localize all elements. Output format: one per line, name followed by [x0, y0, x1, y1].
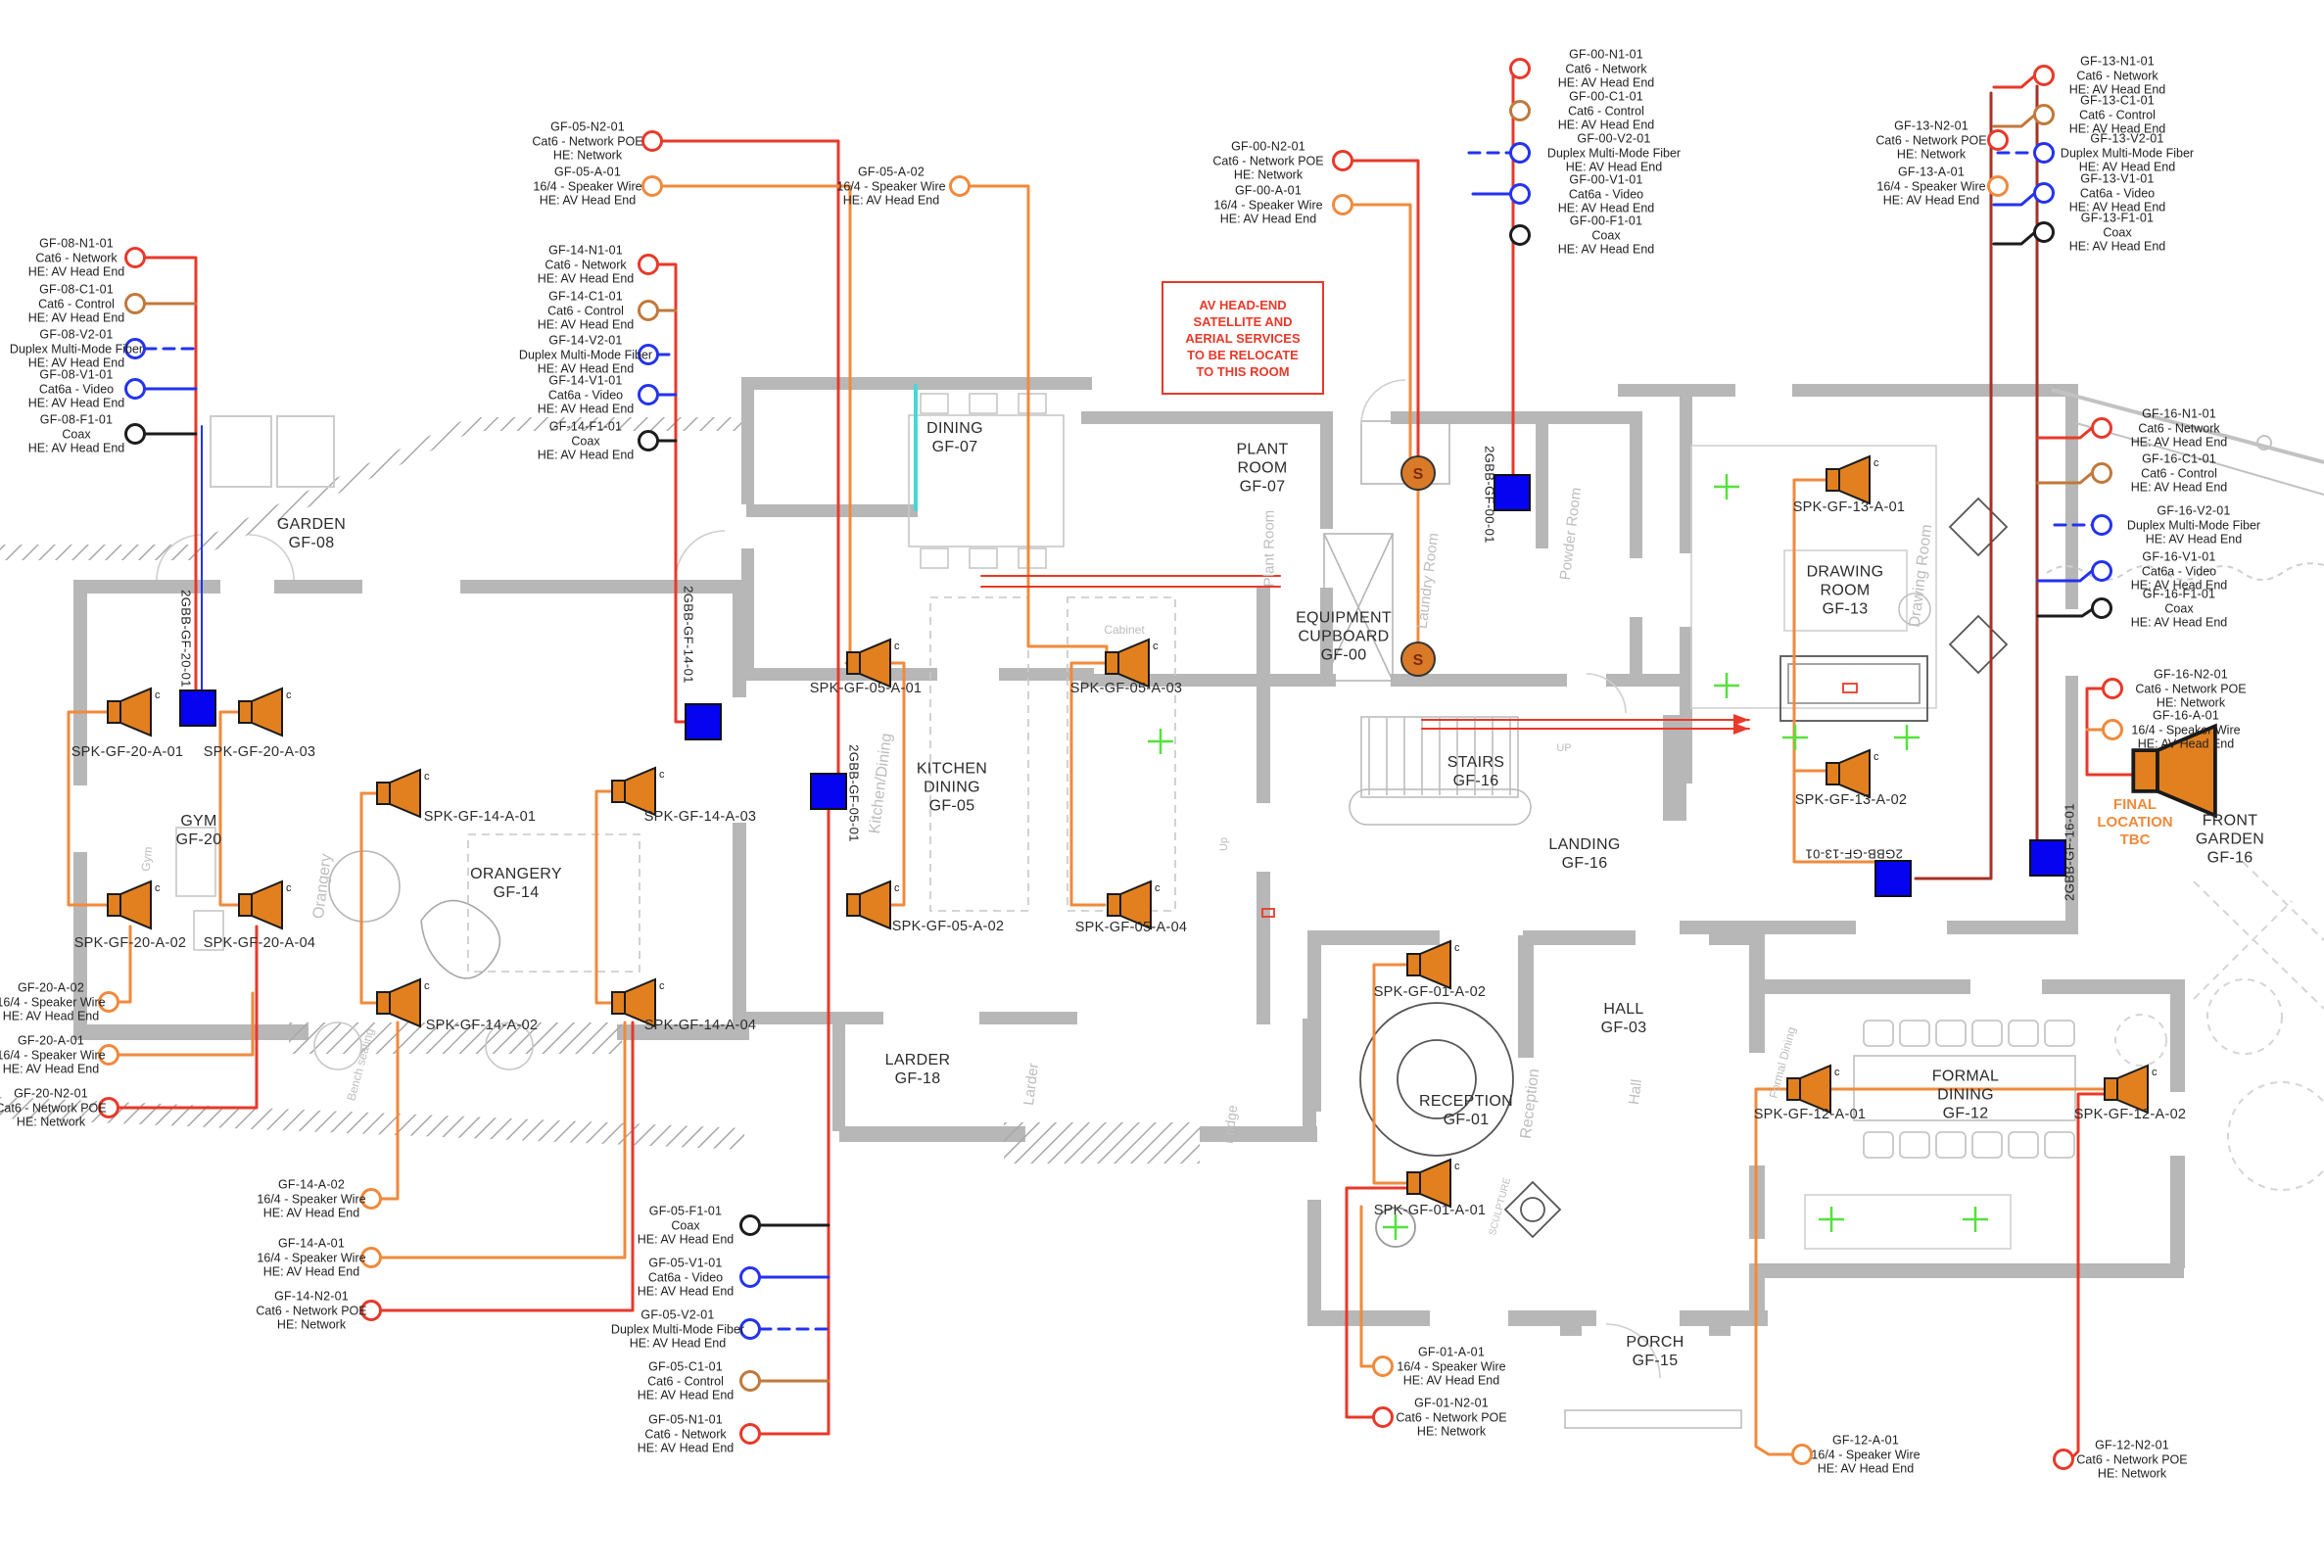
- area-label-formal-dining: Formal Dining: [1767, 1025, 1799, 1100]
- room-label-line: GF-13: [1807, 600, 1884, 619]
- room-label-gym: GYMGF-20: [176, 812, 222, 849]
- area-label-kitchen-dining: Kitchen/Dining: [867, 733, 896, 835]
- callout-gf-14-a-02: GF-14-A-0216/4 - Speaker WireHE: AV Head…: [257, 1177, 365, 1220]
- callout-text: 16/4 - Speaker Wire: [1213, 198, 1322, 213]
- callout-text: GF-16-C1-01: [2131, 451, 2227, 466]
- callout-text: GF-00-N1-01: [1558, 47, 1654, 62]
- callout-text: GF-01-A-01: [1397, 1345, 1505, 1359]
- callout-text: GF-14-A-02: [257, 1177, 365, 1192]
- callout-text: GF-14-N1-01: [538, 243, 634, 258]
- room-label-line: PLANT: [1236, 441, 1288, 459]
- speaker-label-spk-gf-13-a-02: SPK-GF-13-A-02: [1795, 792, 1908, 808]
- callout-text: Duplex Multi-Mode Fiber: [2127, 518, 2260, 533]
- callout-text: GF-14-V1-01: [538, 373, 634, 388]
- speaker-label-spk-gf-20-a-01: SPK-GF-20-A-01: [71, 744, 184, 760]
- callout-gf-05-v2-01: GF-05-V2-01Duplex Multi-Mode FiberHE: AV…: [611, 1307, 744, 1351]
- note-line: TO BE RELOCATE: [1163, 347, 1322, 363]
- room-label-line: KITCHEN: [917, 760, 987, 779]
- callout-text: HE: AV Head End: [538, 402, 634, 416]
- room-label-formal: FORMALDININGGF-12: [1932, 1068, 1999, 1123]
- speaker-label-spk-gf-05-a-02: SPK-GF-05-A-02: [892, 919, 1005, 934]
- callout-text: Cat6 - Network: [638, 1427, 734, 1442]
- callout-gf-14-n2-01: GF-14-N2-01Cat6 - Network POEHE: Network: [256, 1289, 366, 1332]
- callout-text: Coax: [2131, 601, 2227, 616]
- speaker-label-spk-gf-12-a-02: SPK-GF-12-A-02: [2074, 1107, 2187, 1122]
- callout-text: Cat6 - Network POE: [2135, 682, 2246, 696]
- callout-text: Cat6a - Video: [1558, 187, 1654, 202]
- speaker-label-spk-gf-05-a-03: SPK-GF-05-A-03: [1070, 681, 1183, 696]
- room-label-line: DINING: [926, 419, 983, 438]
- callout-gf-08-c1-01: GF-08-C1-01Cat6 - ControlHE: AV Head End: [28, 282, 124, 325]
- callout-text: HE: AV Head End: [28, 264, 124, 279]
- callout-text: GF-16-N1-01: [2131, 406, 2227, 421]
- room-label-stairs: STAIRSGF-16: [1447, 753, 1504, 790]
- callout-text: Cat6 - Network POE: [0, 1101, 107, 1116]
- room-label-line: EQUIPMENT: [1296, 609, 1392, 628]
- callout-text: HE: AV Head End: [611, 1336, 744, 1351]
- callout-gf-08-n1-01: GF-08-N1-01Cat6 - NetworkHE: AV Head End: [28, 236, 124, 279]
- callout-text: HE: AV Head End: [638, 1441, 734, 1455]
- speaker-label-spk-gf-14-a-02: SPK-GF-14-A-02: [426, 1018, 539, 1033]
- callout-text: Coax: [1558, 228, 1654, 243]
- labels-layer: AV HEAD-END SATELLITE AND AERIAL SERVICE…: [0, 0, 2324, 1568]
- callout-gf-13-n1-01: GF-13-N1-01Cat6 - NetworkHE: AV Head End: [2069, 54, 2165, 97]
- speaker-label-spk-gf-14-a-04: SPK-GF-14-A-04: [644, 1018, 757, 1033]
- callout-text: HE: AV Head End: [638, 1284, 734, 1299]
- callout-gf-08-v1-01: GF-08-V1-01Cat6a - VideoHE: AV Head End: [28, 367, 124, 410]
- callout-text: HE: AV Head End: [1558, 118, 1654, 132]
- callout-text: GF-08-V2-01: [10, 327, 143, 342]
- note-line: AERIAL SERVICES: [1163, 330, 1322, 347]
- area-label-fridge: Fridge: [1220, 1104, 1241, 1144]
- room-label-line: GF-07: [1236, 478, 1288, 497]
- callout-gf-05-a-02: GF-05-A-0216/4 - Speaker WireHE: AV Head…: [836, 165, 945, 208]
- room-label-line: ROOM: [1236, 459, 1288, 478]
- callout-text: 16/4 - Speaker Wire: [257, 1192, 365, 1207]
- callout-text: Coax: [28, 427, 124, 442]
- room-label-line: FORMAL: [1932, 1068, 1999, 1086]
- callout-text: GF-08-N1-01: [28, 236, 124, 251]
- callout-text: Cat6 - Network: [2131, 421, 2227, 436]
- area-label-bench-seating: Bench seating: [344, 1026, 376, 1102]
- callout-text: Coax: [638, 1218, 734, 1233]
- room-label-line: LANDING: [1548, 835, 1620, 854]
- callout-text: GF-00-V1-01: [1558, 172, 1654, 187]
- callout-text: GF-00-A-01: [1213, 183, 1322, 198]
- callout-text: HE: AV Head End: [538, 271, 634, 286]
- callout-text: GF-05-F1-01: [638, 1204, 734, 1218]
- callout-text: GF-16-V2-01: [2127, 503, 2260, 518]
- room-label-line: GARDEN: [2196, 831, 2264, 849]
- panel-label-2gbb-gf-13-01: 2GBB-GF-13-01: [1805, 847, 1903, 862]
- callout-text: GF-12-A-01: [1811, 1433, 1920, 1448]
- final-location-line: FINAL: [2097, 796, 2172, 814]
- room-label-line: GF-15: [1626, 1352, 1684, 1370]
- callout-gf-00-n2-01: GF-00-N2-01Cat6 - Network POEHE: Network: [1212, 139, 1323, 182]
- callout-text: GF-05-A-01: [533, 165, 641, 179]
- room-label-drawing: DRAWINGROOMGF-13: [1807, 563, 1884, 619]
- callout-gf-08-f1-01: GF-08-F1-01CoaxHE: AV Head End: [28, 412, 124, 455]
- callout-text: HE: AV Head End: [1811, 1461, 1920, 1476]
- area-label-orangery: Orangery: [310, 853, 336, 920]
- callout-text: GF-13-V1-01: [2069, 171, 2165, 186]
- room-label-reception: RECEPTIONGF-01: [1419, 1092, 1513, 1129]
- callout-gf-14-v2-01: GF-14-V2-01Duplex Multi-Mode FiberHE: AV…: [519, 333, 652, 376]
- callout-text: 16/4 - Speaker Wire: [1397, 1359, 1505, 1374]
- panel-label-2gbb-gf-14-01: 2GBB-GF-14-01: [682, 586, 696, 684]
- callout-text: Cat6 - Control: [2069, 108, 2165, 122]
- speaker-label-spk-gf-20-a-04: SPK-GF-20-A-04: [204, 935, 316, 951]
- callout-gf-13-c1-01: GF-13-C1-01Cat6 - ControlHE: AV Head End: [2069, 93, 2165, 136]
- callout-gf-16-f1-01: GF-16-F1-01CoaxHE: AV Head End: [2131, 587, 2227, 630]
- callout-text: GF-05-A-02: [836, 165, 945, 179]
- callout-text: HE: Network: [1212, 167, 1323, 182]
- callout-gf-14-v1-01: GF-14-V1-01Cat6a - VideoHE: AV Head End: [538, 373, 634, 416]
- room-label-kitchen: KITCHENDININGGF-05: [917, 760, 987, 816]
- callout-gf-14-n1-01: GF-14-N1-01Cat6 - NetworkHE: AV Head End: [538, 243, 634, 286]
- callout-text: GF-16-V1-01: [2131, 549, 2227, 564]
- callout-text: HE: AV Head End: [638, 1388, 734, 1402]
- callout-text: GF-14-F1-01: [538, 419, 634, 434]
- callout-text: HE: AV Head End: [836, 193, 945, 208]
- callout-text: GF-00-N2-01: [1212, 139, 1323, 154]
- callout-text: GF-14-A-01: [257, 1236, 365, 1251]
- callout-text: GF-20-A-02: [0, 980, 106, 995]
- room-label-line: ROOM: [1807, 582, 1884, 600]
- callout-text: Duplex Multi-Mode Fiber: [1547, 146, 1681, 161]
- callout-gf-00-f1-01: GF-00-F1-01CoaxHE: AV Head End: [1558, 214, 1654, 257]
- callout-text: HE: AV Head End: [1213, 212, 1322, 226]
- callout-text: HE: Network: [256, 1317, 366, 1332]
- callout-gf-16-v1-01: GF-16-V1-01Cat6a - VideoHE: AV Head End: [2131, 549, 2227, 593]
- callout-text: Cat6 - Control: [1558, 104, 1654, 119]
- callout-gf-05-c1-01: GF-05-C1-01Cat6 - ControlHE: AV Head End: [638, 1359, 734, 1402]
- callout-gf-20-a-02: GF-20-A-0216/4 - Speaker WireHE: AV Head…: [0, 980, 106, 1023]
- callout-text: GF-00-C1-01: [1558, 89, 1654, 104]
- area-label-gym: Gym: [139, 846, 156, 873]
- room-label-line: DRAWING: [1807, 563, 1884, 582]
- callout-text: HE: AV Head End: [2127, 532, 2260, 546]
- room-label-line: PORCH: [1626, 1333, 1684, 1352]
- area-label-up: UP: [1556, 742, 1571, 754]
- room-label-line: GF-03: [1601, 1019, 1647, 1037]
- callout-text: Cat6a - Video: [2131, 564, 2227, 579]
- callout-gf-05-a-01: GF-05-A-0116/4 - Speaker WireHE: AV Head…: [533, 165, 641, 208]
- room-label-line: GF-12: [1932, 1105, 1999, 1123]
- callout-text: HE: AV Head End: [1558, 75, 1654, 90]
- callout-gf-13-f1-01: GF-13-F1-01CoaxHE: AV Head End: [2069, 211, 2165, 254]
- callout-gf-13-a-01: GF-13-A-0116/4 - Speaker WireHE: AV Head…: [1876, 165, 1985, 208]
- area-label-hall: Hall: [1626, 1078, 1645, 1106]
- speaker-label-spk-gf-05-a-01: SPK-GF-05-A-01: [810, 681, 923, 696]
- speaker-label-spk-gf-14-a-01: SPK-GF-14-A-01: [424, 809, 537, 825]
- panel-label-2gbb-gf-16-01: 2GBB-GF-16-01: [2063, 803, 2077, 901]
- callout-text: GF-13-N2-01: [1875, 119, 1986, 133]
- area-label-larder: Larder: [1020, 1062, 1042, 1106]
- callout-text: GF-14-C1-01: [538, 289, 634, 304]
- final-location-line: TBC: [2097, 832, 2172, 849]
- area-label-plant-room: Plant Room: [1261, 510, 1278, 587]
- room-label-garden: GARDENGF-08: [277, 515, 346, 552]
- note-line: AV HEAD-END: [1163, 297, 1322, 313]
- callout-text: Cat6 - Control: [638, 1374, 734, 1389]
- speaker-label-spk-gf-20-a-02: SPK-GF-20-A-02: [74, 935, 187, 951]
- room-label-line: RECEPTION: [1419, 1092, 1513, 1111]
- speaker-label-spk-gf-05-a-04: SPK-GF-05-A-04: [1075, 920, 1188, 935]
- callout-text: HE: AV Head End: [0, 1009, 106, 1023]
- callout-text: GF-16-F1-01: [2131, 587, 2227, 601]
- callout-gf-08-v2-01: GF-08-V2-01Duplex Multi-Mode FiberHE: AV…: [10, 327, 143, 370]
- callout-gf-00-a-01: GF-00-A-0116/4 - Speaker WireHE: AV Head…: [1213, 183, 1322, 226]
- room-label-orangery: ORANGERYGF-14: [470, 865, 562, 902]
- room-label-landing: LANDINGGF-16: [1548, 835, 1620, 873]
- callout-text: HE: AV Head End: [2131, 736, 2240, 751]
- room-label-line: CUPBOARD: [1296, 628, 1392, 646]
- room-label-line: GYM: [176, 812, 222, 831]
- callout-text: Coax: [538, 434, 634, 449]
- callout-gf-05-f1-01: GF-05-F1-01CoaxHE: AV Head End: [638, 1204, 734, 1247]
- room-label-line: STAIRS: [1447, 753, 1504, 772]
- callout-text: GF-14-N2-01: [256, 1289, 366, 1304]
- callout-text: GF-20-A-01: [0, 1033, 106, 1048]
- area-label-sculpture: SCULPTURE: [1488, 1176, 1513, 1236]
- room-label-line: HALL: [1601, 1000, 1647, 1019]
- callout-text: GF-13-N1-01: [2069, 54, 2165, 69]
- callout-text: HE: AV Head End: [533, 193, 641, 208]
- callout-gf-16-a-01: GF-16-A-0116/4 - Speaker WireHE: AV Head…: [2131, 708, 2240, 751]
- callout-text: GF-05-V1-01: [638, 1256, 734, 1270]
- callout-text: Duplex Multi-Mode Fiber: [2061, 146, 2194, 161]
- callout-text: Duplex Multi-Mode Fiber: [611, 1322, 744, 1337]
- speaker-label-spk-gf-01-a-02: SPK-GF-01-A-02: [1374, 984, 1487, 1000]
- final-location-line: LOCATION: [2097, 814, 2172, 832]
- callout-text: GF-20-N2-01: [0, 1086, 107, 1101]
- callout-gf-14-c1-01: GF-14-C1-01Cat6 - ControlHE: AV Head End: [538, 289, 634, 332]
- callout-text: GF-00-F1-01: [1558, 214, 1654, 228]
- callout-text: GF-05-N2-01: [532, 119, 642, 134]
- room-label-line: GF-16: [2196, 849, 2264, 868]
- callout-text: HE: AV Head End: [638, 1232, 734, 1247]
- note-line: SATELLITE AND: [1163, 313, 1322, 330]
- callout-text: GF-14-V2-01: [519, 333, 652, 348]
- callout-text: Cat6 - Network POE: [2076, 1452, 2187, 1467]
- callout-text: 16/4 - Speaker Wire: [1811, 1448, 1920, 1462]
- callout-text: HE: AV Head End: [0, 1062, 106, 1076]
- callout-text: GF-12-N2-01: [2076, 1438, 2187, 1452]
- final-location-note: FINAL LOCATION TBC: [2097, 796, 2172, 849]
- callout-gf-16-n2-01: GF-16-N2-01Cat6 - Network POEHE: Network: [2135, 667, 2246, 710]
- area-label-laundry-room: Laundry Room: [1414, 532, 1443, 630]
- area-label-reception: Reception: [1518, 1068, 1544, 1140]
- callout-gf-00-v2-01: GF-00-V2-01Duplex Multi-Mode FiberHE: AV…: [1547, 131, 1681, 174]
- room-label-line: GF-05: [917, 797, 987, 816]
- callout-gf-05-n2-01: GF-05-N2-01Cat6 - Network POEHE: Network: [532, 119, 642, 163]
- callout-text: 16/4 - Speaker Wire: [1876, 179, 1985, 194]
- callout-text: Cat6 - Control: [28, 297, 124, 311]
- callout-gf-01-a-01: GF-01-A-0116/4 - Speaker WireHE: AV Head…: [1397, 1345, 1505, 1388]
- callout-text: HE: Network: [1875, 147, 1986, 162]
- callout-text: GF-08-C1-01: [28, 282, 124, 297]
- callout-gf-20-a-01: GF-20-A-0116/4 - Speaker WireHE: AV Head…: [0, 1033, 106, 1076]
- callout-text: GF-05-C1-01: [638, 1359, 734, 1374]
- callout-text: 16/4 - Speaker Wire: [2131, 723, 2240, 737]
- callout-text: Duplex Multi-Mode Fiber: [10, 342, 143, 356]
- area-label-up: Up: [1218, 837, 1230, 851]
- callout-gf-12-n2-01: GF-12-N2-01Cat6 - Network POEHE: Network: [2076, 1438, 2187, 1481]
- callout-gf-05-n1-01: GF-05-N1-01Cat6 - NetworkHE: AV Head End: [638, 1412, 734, 1455]
- callout-text: Cat6a - Video: [2069, 186, 2165, 201]
- callout-gf-16-c1-01: GF-16-C1-01Cat6 - ControlHE: AV Head End: [2131, 451, 2227, 495]
- callout-text: HE: AV Head End: [2131, 615, 2227, 630]
- speaker-label-spk-gf-13-a-01: SPK-GF-13-A-01: [1793, 499, 1906, 515]
- callout-text: Cat6 - Network: [1558, 62, 1654, 76]
- speaker-label-spk-gf-14-a-03: SPK-GF-14-A-03: [644, 809, 757, 825]
- room-label-line: GF-00: [1296, 646, 1392, 665]
- callout-text: GF-05-N1-01: [638, 1412, 734, 1427]
- note-line: TO THIS ROOM: [1163, 363, 1322, 380]
- callout-text: GF-08-F1-01: [28, 412, 124, 427]
- callout-text: Cat6a - Video: [538, 388, 634, 403]
- room-label-line: DINING: [917, 779, 987, 797]
- callout-text: HE: Network: [0, 1115, 107, 1129]
- callout-text: Cat6 - Control: [538, 304, 634, 318]
- room-label-porch: PORCHGF-15: [1626, 1333, 1684, 1370]
- callout-text: HE: Network: [532, 148, 642, 163]
- panel-label-2gbb-gf-05-01: 2GBB-GF-05-01: [847, 744, 862, 842]
- callout-gf-13-v1-01: GF-13-V1-01Cat6a - VideoHE: AV Head End: [2069, 171, 2165, 214]
- callout-text: Cat6 - Network POE: [532, 134, 642, 149]
- room-label-front: FRONTGARDENGF-16: [2196, 812, 2264, 868]
- callout-text: Cat6a - Video: [638, 1270, 734, 1285]
- room-label-equipment: EQUIPMENTCUPBOARDGF-00: [1296, 609, 1392, 665]
- callout-text: GF-01-N2-01: [1396, 1396, 1506, 1410]
- callout-text: Duplex Multi-Mode Fiber: [519, 348, 652, 362]
- callout-text: HE: AV Head End: [1397, 1373, 1505, 1388]
- callout-gf-00-v1-01: GF-00-V1-01Cat6a - VideoHE: AV Head End: [1558, 172, 1654, 215]
- callout-text: 16/4 - Speaker Wire: [257, 1251, 365, 1265]
- callout-text: Cat6a - Video: [28, 382, 124, 397]
- callout-text: Cat6 - Network POE: [1875, 133, 1986, 148]
- callout-text: HE: AV Head End: [28, 441, 124, 455]
- callout-text: Cat6 - Network POE: [1396, 1410, 1506, 1425]
- callout-text: Cat6 - Control: [2131, 466, 2227, 481]
- room-label-line: DINING: [1932, 1086, 1999, 1105]
- room-label-line: FRONT: [2196, 812, 2264, 831]
- callout-gf-14-a-01: GF-14-A-0116/4 - Speaker WireHE: AV Head…: [257, 1236, 365, 1279]
- callout-text: Cat6 - Network: [2069, 69, 2165, 83]
- area-label-powder-room: Powder Room: [1557, 487, 1585, 581]
- room-label-line: GF-18: [885, 1069, 951, 1088]
- callout-gf-00-c1-01: GF-00-C1-01Cat6 - ControlHE: AV Head End: [1558, 89, 1654, 132]
- panel-label-2gbb-gf-00-01: 2GBB-GF-00-01: [1483, 446, 1497, 544]
- room-label-line: GF-14: [470, 883, 562, 902]
- room-label-line: GF-16: [1447, 772, 1504, 790]
- callout-text: GF-05-V2-01: [611, 1307, 744, 1322]
- floor-plan-canvas: SScccccccccccccccccc AV HEAD-END SATELLI…: [0, 0, 2324, 1568]
- callout-text: HE: Network: [2076, 1466, 2187, 1481]
- callout-text: HE: AV Head End: [28, 310, 124, 325]
- callout-text: GF-13-A-01: [1876, 165, 1985, 179]
- callout-gf-14-f1-01: GF-14-F1-01CoaxHE: AV Head End: [538, 419, 634, 462]
- room-label-line: GF-01: [1419, 1111, 1513, 1129]
- callout-text: GF-13-C1-01: [2069, 93, 2165, 108]
- speaker-label-spk-gf-20-a-03: SPK-GF-20-A-03: [204, 744, 316, 760]
- callout-text: HE: Network: [1396, 1424, 1506, 1439]
- callout-text: 16/4 - Speaker Wire: [836, 179, 945, 194]
- callout-text: Cat6 - Network: [538, 258, 634, 272]
- callout-text: Cat6 - Network POE: [256, 1304, 366, 1318]
- panel-label-2gbb-gf-20-01: 2GBB-GF-20-01: [179, 590, 194, 688]
- room-label-line: GF-20: [176, 831, 222, 849]
- callout-text: HE: AV Head End: [538, 448, 634, 462]
- callout-gf-01-n2-01: GF-01-N2-01Cat6 - Network POEHE: Network: [1396, 1396, 1506, 1439]
- callout-text: HE: AV Head End: [257, 1264, 365, 1279]
- room-label-line: LARDER: [885, 1051, 951, 1069]
- callout-text: Cat6 - Network POE: [1212, 154, 1323, 168]
- callout-text: HE: AV Head End: [2069, 239, 2165, 254]
- room-label-line: GF-08: [277, 534, 346, 552]
- callout-text: HE: AV Head End: [1876, 193, 1985, 208]
- callout-text: HE: AV Head End: [538, 317, 634, 332]
- room-label-line: GF-16: [1548, 854, 1620, 873]
- room-label-line: ORANGERY: [470, 865, 562, 883]
- callout-gf-20-n2-01: GF-20-N2-01Cat6 - Network POEHE: Network: [0, 1086, 107, 1129]
- callout-gf-05-v1-01: GF-05-V1-01Cat6a - VideoHE: AV Head End: [638, 1256, 734, 1299]
- callout-text: 16/4 - Speaker Wire: [0, 1048, 106, 1063]
- callout-text: HE: AV Head End: [1558, 242, 1654, 257]
- callout-gf-16-n1-01: GF-16-N1-01Cat6 - NetworkHE: AV Head End: [2131, 406, 2227, 450]
- callout-text: 16/4 - Speaker Wire: [533, 179, 641, 194]
- callout-gf-00-n1-01: GF-00-N1-01Cat6 - NetworkHE: AV Head End: [1558, 47, 1654, 90]
- callout-gf-13-v2-01: GF-13-V2-01Duplex Multi-Mode FiberHE: AV…: [2061, 131, 2194, 174]
- callout-text: Coax: [2069, 225, 2165, 240]
- callout-text: GF-13-F1-01: [2069, 211, 2165, 225]
- callout-text: GF-00-V2-01: [1547, 131, 1681, 146]
- callout-text: HE: AV Head End: [28, 396, 124, 410]
- room-label-dining: DININGGF-07: [926, 419, 983, 456]
- room-label-larder: LARDERGF-18: [885, 1051, 951, 1088]
- callout-text: HE: AV Head End: [2131, 480, 2227, 495]
- room-label-line: GARDEN: [277, 515, 346, 534]
- relocation-note: AV HEAD-END SATELLITE AND AERIAL SERVICE…: [1162, 281, 1324, 395]
- callout-text: GF-16-A-01: [2131, 708, 2240, 723]
- callout-text: GF-13-V2-01: [2061, 131, 2194, 146]
- callout-gf-13-n2-01: GF-13-N2-01Cat6 - Network POEHE: Network: [1875, 119, 1986, 162]
- callout-text: HE: AV Head End: [2131, 435, 2227, 450]
- callout-gf-16-v2-01: GF-16-V2-01Duplex Multi-Mode FiberHE: AV…: [2127, 503, 2260, 546]
- area-label-cabinet: Cabinet: [1104, 623, 1144, 637]
- area-label-drawing-room: Drawing Room: [1907, 523, 1937, 628]
- callout-text: GF-08-V1-01: [28, 367, 124, 382]
- speaker-label-spk-gf-12-a-01: SPK-GF-12-A-01: [1754, 1107, 1867, 1122]
- callout-text: Cat6 - Network: [28, 251, 124, 265]
- callout-text: GF-16-N2-01: [2135, 667, 2246, 682]
- room-label-hall: HALLGF-03: [1601, 1000, 1647, 1037]
- callout-gf-12-a-01: GF-12-A-0116/4 - Speaker WireHE: AV Head…: [1811, 1433, 1920, 1476]
- callout-text: HE: AV Head End: [257, 1206, 365, 1220]
- room-label-line: GF-07: [926, 438, 983, 456]
- speaker-label-spk-gf-01-a-01: SPK-GF-01-A-01: [1374, 1203, 1487, 1218]
- callout-text: 16/4 - Speaker Wire: [0, 995, 106, 1010]
- room-label-plant: PLANTROOMGF-07: [1236, 441, 1288, 497]
